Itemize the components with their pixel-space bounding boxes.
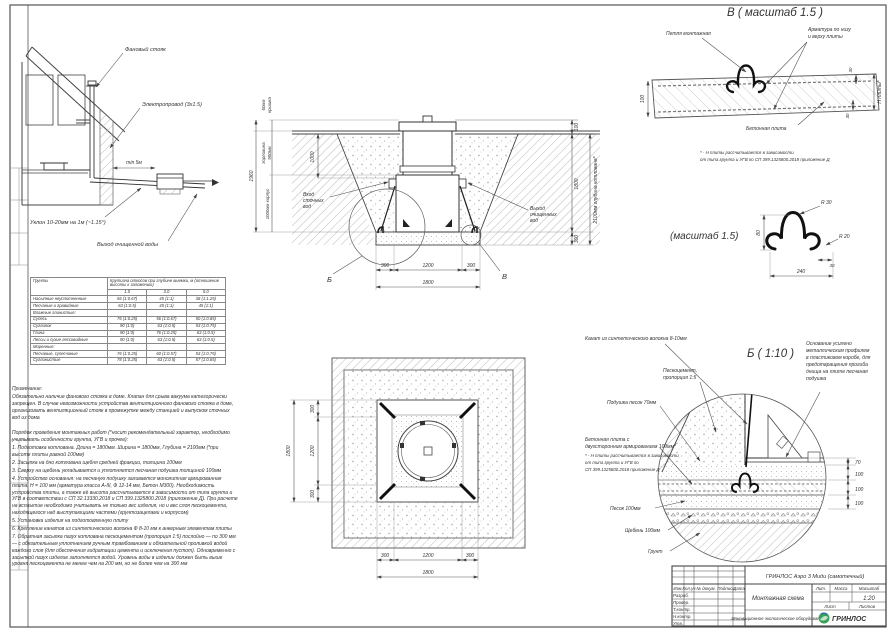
- notes-item-2: 2. Засыпка на дно котлована щебня средне…: [12, 460, 238, 467]
- plan-dim-300-bottom: 300: [310, 490, 316, 499]
- tb-h2: Кол.уч: [682, 586, 696, 591]
- label-gravel: Щебень 100мм: [625, 528, 661, 534]
- table-row: Лессы и сухие лессовидные90 (1:0)63 (1:0…: [31, 337, 226, 344]
- plan-dim-1200: 1200: [310, 445, 316, 456]
- label-slab-note-3: СП 399.1325800.2018 приложение Д: [585, 467, 660, 472]
- dim-b1200: 1200: [422, 263, 433, 269]
- notes-item-1: 1. Подготовка котлована. Длина = 1800мм.…: [12, 445, 238, 459]
- label-slab-2: двухсторонним армированием 100мм*: [585, 444, 677, 450]
- tb-mass-label: Масса: [835, 586, 849, 591]
- detail-v-dim-100: 100: [640, 95, 646, 104]
- svg-text:вод: вод: [303, 204, 311, 210]
- label-sandcement-1: Пескоцемент,: [663, 368, 697, 374]
- tb-r1: Разраб.: [673, 593, 689, 598]
- label-rebar-1: Арматура по низу: [807, 27, 851, 33]
- dim-240: 240: [796, 269, 806, 275]
- dim-100b: 100: [855, 487, 864, 493]
- plan-dim-b300l: 300: [381, 553, 390, 559]
- detail-b-title: Б ( 1:10 ): [747, 348, 794, 360]
- plan-dim-1800-left: 1800: [286, 445, 292, 456]
- dim-r30: R 30: [821, 200, 832, 206]
- brand-logo: ГРИНЛОС: [819, 613, 868, 624]
- tb-h1: Изм.: [673, 586, 682, 591]
- table-header-soil: Грунты: [31, 278, 108, 296]
- dim-cover-a: 60мм: [261, 100, 266, 111]
- detail-v-dim-h: Н плиты*: [877, 79, 883, 103]
- house-wall-hatch: [100, 109, 113, 205]
- dim-b1800: 1800: [422, 280, 433, 286]
- dim-neck-a: горловина: [261, 142, 266, 164]
- tb-r5: Утв.: [673, 621, 683, 626]
- table-row: Влажные глинистые:: [31, 310, 226, 317]
- dim-pit-depth: 2100мм глубина котлована*: [593, 155, 599, 224]
- svg-text:предотвращения прогиба: предотвращения прогиба: [806, 362, 868, 368]
- notes-para1: Обязательно наличие фанового стояка в до…: [12, 394, 238, 422]
- notes-item-4: 4. Устройство основания: на песчаную под…: [12, 476, 238, 517]
- callout-b-letter: Б: [327, 275, 332, 284]
- dim-body: 1000мм корпус: [265, 188, 270, 220]
- slab-section: [376, 232, 480, 245]
- tb-sheet-label: Лист: [823, 604, 836, 609]
- tb-lit-label: Лит.: [815, 586, 826, 591]
- notes-block: Примечание: Обязательно наличие фанового…: [12, 386, 238, 569]
- notes-item-5: 5. Установка изделия на подготовленную п…: [12, 518, 238, 525]
- tb-r2: Провер.: [673, 600, 689, 605]
- dim-cover-b: крышка: [267, 96, 272, 112]
- svg-text:вод: вод: [530, 218, 538, 224]
- detail-v-title: В ( масштаб 1.5 ): [727, 7, 823, 19]
- tb-product: ГРИНЛОС Аэро 3 Миди (самотечный): [766, 573, 865, 580]
- tb-doc-name: Монтажная схема: [752, 596, 805, 602]
- table-row: Моренные:: [31, 344, 226, 351]
- label-sand: Песок 100мм: [610, 506, 641, 512]
- label-slab-1: Бетонная плита с: [585, 437, 630, 443]
- plan-view: 1800 300 1200 300 300 1200 300 1800: [286, 358, 525, 580]
- label-soil: Грунт: [648, 549, 663, 555]
- table-row: Суглинистые78 (1:0.25)63 (1:0.5)57 (1:0.…: [31, 357, 226, 364]
- label-clean-water-outlet: Выход очищенной воды: [97, 241, 158, 248]
- notes-item-7: 7. Обратная засыпка пазух котлована песк…: [12, 534, 238, 568]
- table-row: Песчаные, супесчаные76 (1:0.25)60 (1:0.5…: [31, 351, 226, 358]
- notes-item-3: 3. Сверху на щебень укладывается и уплот…: [12, 468, 238, 475]
- dim-b300r: 300: [467, 263, 476, 269]
- loop-shape: [767, 213, 819, 250]
- detail-loop-title: (масштаб 1.5): [670, 230, 738, 242]
- label-rebar-2: и верху плиты: [808, 34, 843, 40]
- table-row: Песчаные и гравийные63 (1:0.5)45 (1:1)45…: [31, 303, 226, 310]
- plan-dim-b1200: 1200: [422, 553, 433, 559]
- label-min-dist: min 5м: [126, 160, 142, 166]
- tb-scale-label: Масштаб: [859, 586, 880, 591]
- svg-text:в пластиковом коробе, для: в пластиковом коробе, для: [806, 355, 871, 361]
- tb-r3: Т.контр.: [673, 607, 691, 612]
- dim-1800-depth: 1800: [574, 178, 580, 189]
- table-row: Насыпные неуплотненные56 (1:0.67)45 (1:1…: [31, 296, 226, 303]
- table-header-slope: Крутизна откосов при глубине выемки, м (…: [108, 278, 226, 290]
- label-slope: Уклон 10-20мм на 1м (~1.15°): [29, 220, 106, 226]
- svg-text:металлическим профилем: металлическим профилем: [806, 348, 870, 354]
- detail-loop: (масштаб 1.5) R 30 R 20 80 30 240: [670, 200, 850, 279]
- tb-h3: № докум.: [696, 586, 715, 591]
- label-rope: Канат из синтетического волокна 8-10мм: [585, 336, 687, 342]
- label-slab: Бетонная плита: [746, 126, 787, 132]
- tb-h5: Дата: [732, 586, 745, 591]
- detail-v: В ( масштаб 1.5 ) Петля монтажная Армату…: [640, 7, 883, 162]
- dim-70: 70: [855, 460, 861, 466]
- dim-1000: 1000: [310, 151, 316, 162]
- notes-item-6: 6. Крепление канатов из синтетического в…: [12, 526, 238, 533]
- mini-station: [157, 174, 219, 194]
- dim-r20: R 20: [839, 234, 850, 240]
- label-base-note: Основание усилено металлическим профилем…: [806, 341, 871, 382]
- main-section: Б В Вход сточных вод Выход очищенных вод…: [249, 96, 600, 290]
- table-depth-3: 5.0: [186, 289, 225, 296]
- svg-text:подушка: подушка: [806, 376, 826, 382]
- dim-b300l: 300: [381, 263, 390, 269]
- detail-v-dim-30b: 30: [845, 113, 850, 118]
- detail-v-note-2: от типа грунта и УГВ по СП 399.1325800.2…: [700, 157, 830, 162]
- notes-title: Примечание:: [12, 386, 238, 393]
- label-slab-note-2: от типа грунта и УГВ по: [585, 460, 639, 465]
- drawing-sheet: { "house": { "fan_stack": "Фановый стояк…: [0, 0, 895, 632]
- tb-scale-value: 1:20: [863, 596, 875, 602]
- svg-text:Основание усилено: Основание усилено: [806, 341, 852, 347]
- dim-80: 80: [756, 230, 762, 236]
- tb-slogan: Инновационное экологическое оборудование: [731, 616, 825, 621]
- logo-brand-text: ГРИНЛОС: [832, 616, 867, 623]
- table-row: Суглинок90 (1:0)63 (1:0.5)53 (1:0.75): [31, 323, 226, 330]
- dim-100-top: 100: [574, 123, 580, 132]
- tank-plan: [398, 421, 458, 481]
- detail-v-dim-30a: 30: [848, 67, 853, 72]
- tb-r4: Н.контр.: [673, 614, 692, 619]
- dim-300-slab: 300: [574, 235, 580, 244]
- label-fan-stack: Фановый стояк: [125, 46, 166, 53]
- plan-dim-b300r: 300: [466, 553, 475, 559]
- dim-neck-b: 900мм: [267, 146, 272, 159]
- tb-sheets-label: Листов: [858, 604, 876, 609]
- label-slab-note-1: * - Н плиты рассчитывается в зависимости: [585, 453, 679, 458]
- table-depth-1: 1.5: [108, 289, 147, 296]
- soil-slope-table: Грунты Крутизна откосов при глубине выем…: [30, 277, 226, 365]
- house-sketch: Фановый стояк Электропровод (3х1.5) min …: [22, 46, 219, 248]
- notes-para2: Порядок проведения монтажных работ (*нос…: [12, 430, 238, 444]
- plan-dim-300-top: 300: [310, 405, 316, 414]
- label-loop: Петля монтажная: [666, 31, 711, 37]
- dim-30: 30: [830, 263, 835, 268]
- plan-dim-b1800: 1800: [422, 570, 433, 576]
- dim-100c: 100: [855, 501, 864, 507]
- table-depth-2: 3.0: [147, 289, 186, 296]
- callout-v-letter: В: [502, 272, 507, 281]
- dim-1960: 1960: [249, 170, 255, 181]
- label-wiring: Электропровод (3х1.5): [142, 102, 202, 108]
- detail-b: Б ( 1:10 ): [585, 336, 871, 568]
- detail-v-note-1: * - Н плиты рассчитывается в зависимости: [700, 150, 794, 155]
- label-cushion: Подушка песок 70мм: [607, 400, 657, 406]
- dim-100a: 100: [855, 472, 864, 478]
- table-row: Супесь76 (1:0.25)56 (1:0.67)50 (1:0.85): [31, 316, 226, 323]
- svg-text:днища на плите песчаная: днища на плите песчаная: [806, 369, 868, 375]
- label-sandcement-2: пропорция 1:5: [663, 375, 696, 381]
- table-row: Глина90 (1:0)76 (1:0.25)63 (1:0.5): [31, 330, 226, 337]
